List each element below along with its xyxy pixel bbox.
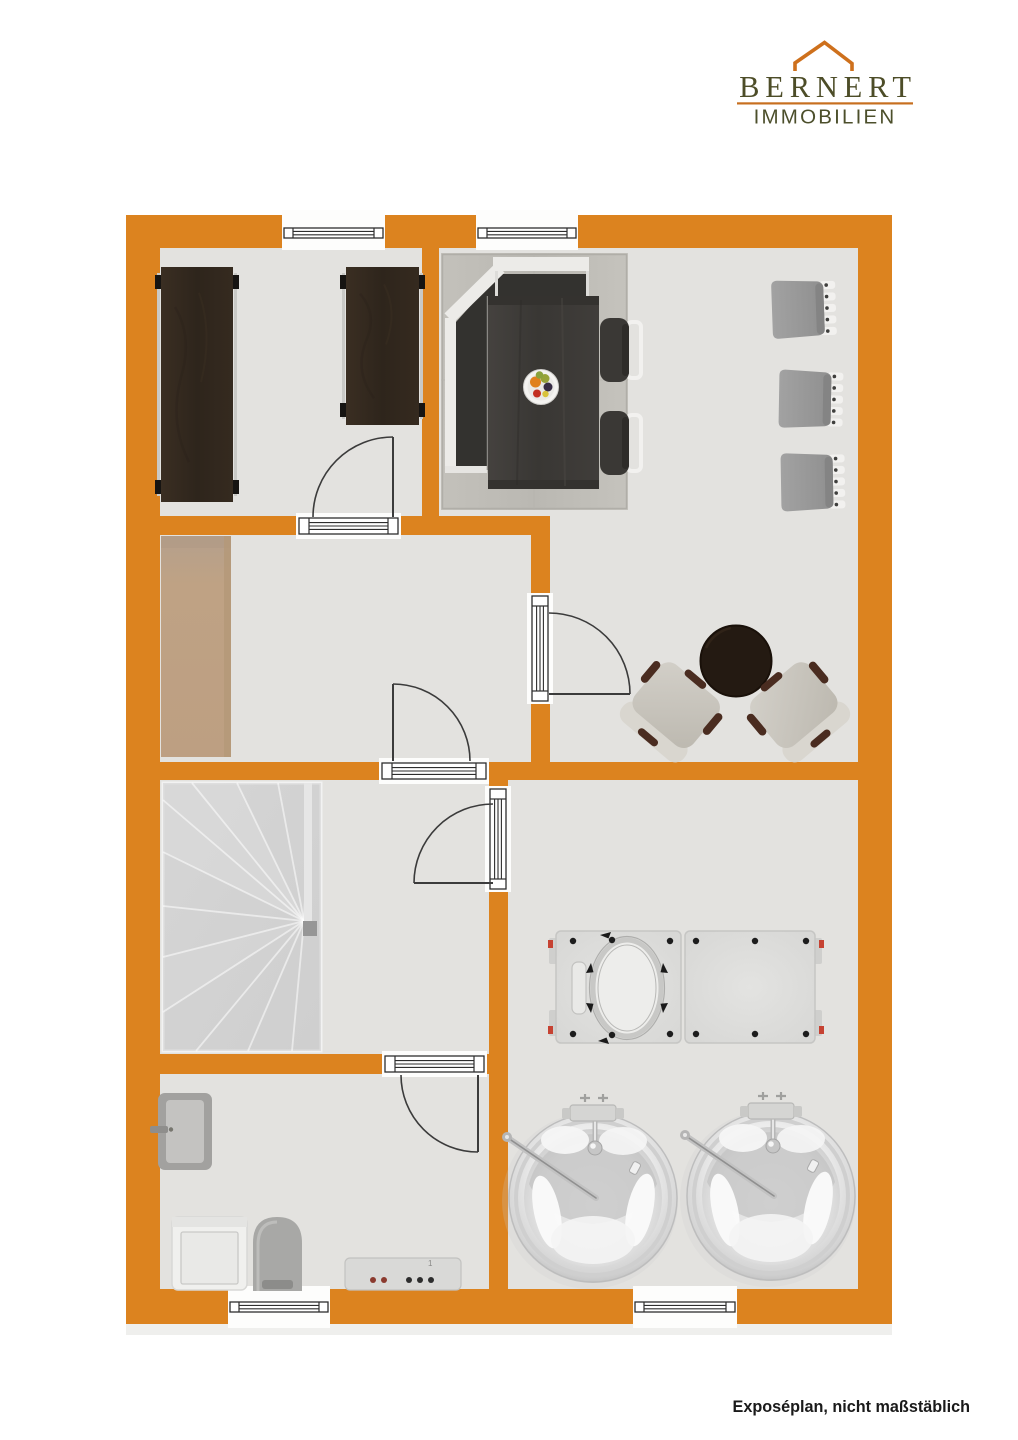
svg-text:1: 1 — [428, 1259, 433, 1268]
svg-text:BERNERT: BERNERT — [739, 70, 917, 104]
svg-text:Exposéplan, nicht maßstäblich: Exposéplan, nicht maßstäblich — [733, 1398, 970, 1416]
svg-text:IMMOBILIEN: IMMOBILIEN — [754, 106, 897, 129]
